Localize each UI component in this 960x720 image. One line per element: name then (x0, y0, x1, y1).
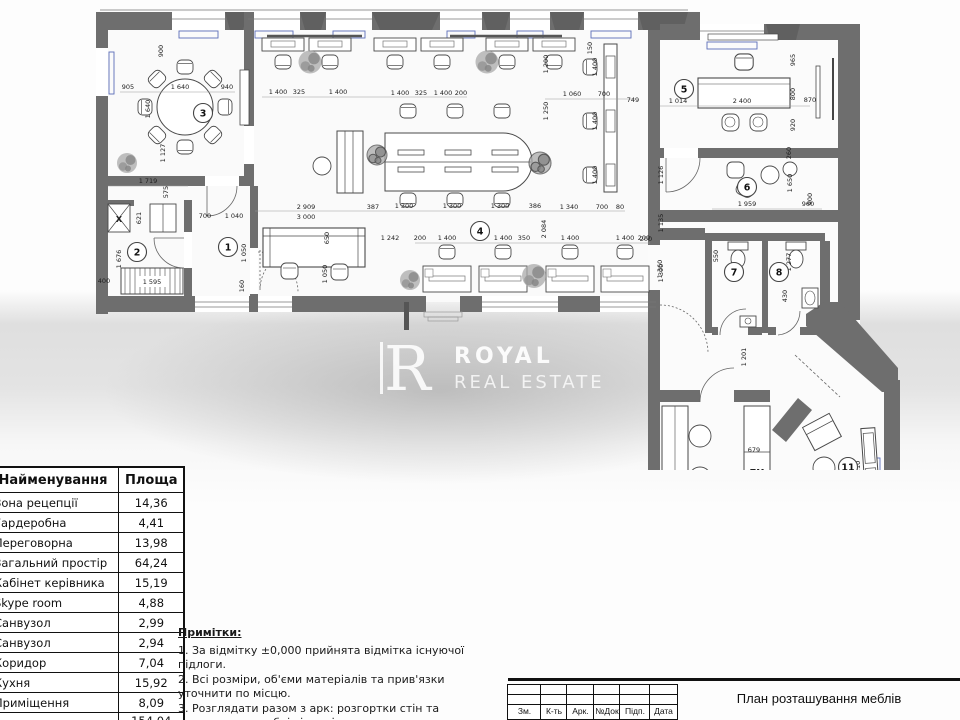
dimension-label: 700 (199, 212, 211, 220)
dimension-label: 920 (789, 119, 797, 131)
dimension-label: 3 000 (297, 213, 316, 221)
room-name-cell: Skype room (0, 593, 119, 613)
dimension-label: 260 (785, 147, 793, 159)
table-row: Санвузол2,99 (0, 613, 184, 633)
table-row: Переговорна13,98 (0, 533, 184, 553)
dimension-label: 960 (802, 200, 814, 208)
dimension-label: 1 650 (786, 174, 794, 193)
titleblock-col-label: Зм. (507, 704, 542, 720)
room-badge-number: 6 (744, 182, 751, 193)
dimension-label: 1 050 (321, 265, 329, 284)
dimension-label: 2 909 (297, 203, 316, 211)
dimension-label: 325 (415, 89, 427, 97)
room-badge-number: 5 (681, 84, 688, 95)
room-area-cell: 64,24 (119, 553, 185, 573)
notes-list: 1. За відмітку ±0,000 прийнята відмітка … (178, 644, 500, 720)
dimension-label: 1 400 (616, 234, 635, 242)
titleblock-col-label: Арк. (566, 704, 595, 720)
dimension-label: 1 400 (434, 89, 453, 97)
dimension-label: 387 (367, 203, 379, 211)
table-header-row: Найменування Площа (0, 467, 184, 493)
room-area-cell: 4,88 (119, 593, 185, 613)
dimension-label: 940 (221, 83, 233, 91)
dimension-label: 870 (804, 96, 816, 104)
dimension-label: 200 (455, 89, 467, 97)
table-row: Кухня15,92 (0, 673, 184, 693)
notes-title: Примітки: (178, 626, 500, 641)
titleblock-col-label: №Док (593, 704, 621, 720)
room-name-cell: Гардеробна (0, 513, 119, 533)
dimension-label: 1 126 (657, 166, 665, 185)
room-badge-number: 4 (477, 226, 484, 237)
dimension-label: 1 640 (144, 100, 152, 119)
appliance-label: ПМ (750, 468, 765, 470)
room-name-cell: Кухня (0, 673, 119, 693)
titleblock-col-label: Підп. (619, 704, 651, 720)
room-area-cell: 14,36 (119, 493, 185, 513)
table-row: Приміщення8,09 (0, 693, 184, 713)
dimension-label: 1 050 (240, 244, 248, 263)
room-area-cell: 2,99 (119, 613, 185, 633)
dimension-label: 575 (162, 186, 170, 198)
table-row: Санвузол2,94 (0, 633, 184, 653)
dimension-label: 350 (518, 234, 530, 242)
titleblock-col-label: Дата (649, 704, 678, 720)
dimension-label: 1 595 (143, 278, 162, 286)
dimension-label: 1 250 (542, 102, 550, 121)
dimension-label: 1 400 (591, 112, 599, 131)
dimension-label: 1 200 (542, 55, 550, 74)
dimension-label: 1 400 (561, 234, 580, 242)
note-line: 1. За відмітку ±0,000 прийнята відмітка … (178, 644, 500, 673)
room-name-cell: Переговорна (0, 533, 119, 553)
dimension-label: 160 (238, 280, 246, 292)
drawing-title: План розташування меблів (678, 691, 960, 706)
dimension-label: 1 640 (171, 83, 190, 91)
dimension-label: 150 (586, 42, 594, 54)
dimension-label: 1 340 (560, 203, 579, 211)
col-area-header: Площа (119, 467, 185, 493)
room-badge-number: 11 (841, 462, 854, 470)
dimension-label: 1 400 (494, 234, 513, 242)
room-name-cell: Зона рецепції (0, 493, 119, 513)
plant-icon (117, 153, 137, 173)
dimension-label: 325 (293, 88, 305, 96)
dimension-label: 1 300 (491, 202, 510, 210)
dimension-label: 400 (98, 277, 110, 285)
room-area-cell: 13,98 (119, 533, 185, 553)
dimension-label: 1 300 (395, 202, 414, 210)
total-area-value: 154,04 м² (119, 713, 185, 720)
dimension-label: 1 060 (563, 90, 582, 98)
dimension-label: 550 (712, 250, 720, 262)
dimension-label: 1 676 (115, 250, 123, 269)
room-area-cell: 4,41 (119, 513, 185, 533)
table-row: Зона рецепції14,36 (0, 493, 184, 513)
dimension-label: 1 135 (657, 214, 665, 233)
dimension-label: 700 (596, 203, 608, 211)
room-name-cell: Санвузол (0, 633, 119, 653)
room-name-cell: Приміщення (0, 693, 119, 713)
dimension-label: 2 084 (540, 220, 548, 239)
area-table: Найменування Площа Зона рецепції14,36Гар… (0, 466, 185, 720)
dimension-label: 905 (122, 83, 134, 91)
table-row: Коридор7,04 (0, 653, 184, 673)
note-line: 2. Всі розміри, об'єми матеріалів та при… (178, 673, 500, 702)
dimension-label: 1 040 (225, 212, 244, 220)
room-name-cell: Санвузол (0, 613, 119, 633)
dimension-label: 386 (529, 202, 541, 210)
dimension-label: 200 (640, 235, 652, 243)
note-line: 3. Розглядати разом з арк: розгортки сті… (178, 702, 500, 720)
room-name-cell: Загальний простір (0, 553, 119, 573)
dimension-label: 430 (781, 290, 789, 302)
dimension-label: 700 (598, 90, 610, 98)
col-name-header: Найменування (0, 467, 119, 493)
titleblock-col-label: К-ть (540, 704, 568, 720)
dimension-label: 80 (616, 203, 624, 211)
dimension-label: 1 400 (591, 58, 599, 77)
dimension-label: 1 719 (139, 177, 158, 185)
room-name-cell: Коридор (0, 653, 119, 673)
dimension-label: 900 (157, 45, 165, 57)
dimension-label: 1 400 (329, 88, 348, 96)
room-area-cell: 15,92 (119, 673, 185, 693)
sideboard (240, 70, 249, 125)
room-area-cell: 7,04 (119, 653, 185, 673)
dimension-label: 1 242 (381, 234, 400, 242)
dimension-label: 200 (414, 234, 426, 242)
dimension-label: 1 400 (269, 88, 288, 96)
dimension-label: 800 (789, 88, 797, 100)
dimension-label: 1 400 (591, 166, 599, 185)
room-badge-number: 2 (134, 247, 141, 258)
notes-block: Примітки: 1. За відмітку ±0,000 прийнята… (178, 626, 500, 720)
table-row: Загальний простір64,24 (0, 553, 184, 573)
room-badge-number: 7 (731, 267, 738, 278)
room-area-cell: 8,09 (119, 693, 185, 713)
room-badge-number: 1 (225, 242, 232, 253)
dimension-label: 1 400 (438, 234, 457, 242)
titleblock-grid: Зм.К-тьАрк.№ДокПідп.Дата (508, 685, 677, 719)
table-row: Skype room4,88 (0, 593, 184, 613)
dimension-label: 650 (323, 232, 331, 244)
table-row: Кабінет керівника15,19 (0, 573, 184, 593)
room-area-cell: 2,94 (119, 633, 185, 653)
appliance-label: X (116, 215, 123, 224)
title-block: Зм.К-тьАрк.№ДокПідп.Дата План розташуван… (508, 678, 960, 720)
kitchen-cabinets (744, 406, 770, 470)
dimension-label: 1 959 (738, 200, 757, 208)
dimension-label: 1 300 (443, 202, 462, 210)
dimension-label: 2 400 (733, 97, 752, 105)
drawing-sheet: R ROYAL REAL ESTATE (0, 0, 960, 720)
total-empty-cell (0, 713, 119, 720)
table-total-row: 154,04 м² (0, 713, 184, 720)
floor-plan: 9009051 6409401 6401 1271 7195756217001 … (0, 0, 960, 470)
dimension-label: 621 (135, 212, 143, 224)
dimension-label: 965 (789, 54, 797, 66)
dimension-label: 1 127 (159, 144, 167, 163)
table-row: Гардеробна4,41 (0, 513, 184, 533)
dimension-label: 749 (627, 96, 639, 104)
dimension-label: 679 (748, 446, 760, 454)
dimension-label: 1 201 (740, 348, 748, 367)
dimension-label: 1 400 (391, 89, 410, 97)
room-badge-number: 3 (200, 108, 207, 119)
entrance-door-leaf (404, 302, 409, 330)
dimension-label: 1 360 (656, 260, 664, 279)
room-area-cell: 15,19 (119, 573, 185, 593)
room-badge-number: 8 (776, 267, 783, 278)
room-name-cell: Кабінет керівника (0, 573, 119, 593)
